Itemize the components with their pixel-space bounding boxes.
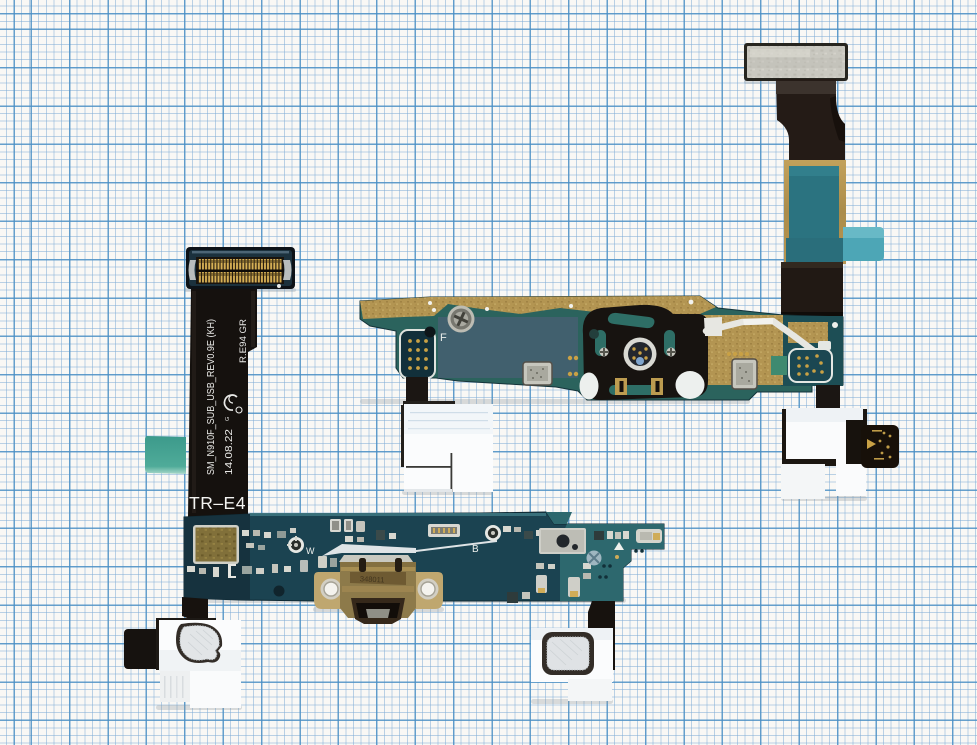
svg-text:F: F [440,332,447,344]
svg-text:TR–E4: TR–E4 [189,493,246,513]
svg-text:14.08.22: 14.08.22 [224,428,235,475]
svg-text:G: G [225,417,231,421]
svg-text:R.E94 GR: R.E94 GR [238,318,248,363]
svg-text:B: B [472,544,479,555]
svg-text:SM_N910F_SUB_USB_REV0.9E (KH): SM_N910F_SUB_USB_REV0.9E (KH) [206,319,217,475]
svg-text:W: W [306,546,315,556]
svg-text:348011: 348011 [360,574,385,584]
